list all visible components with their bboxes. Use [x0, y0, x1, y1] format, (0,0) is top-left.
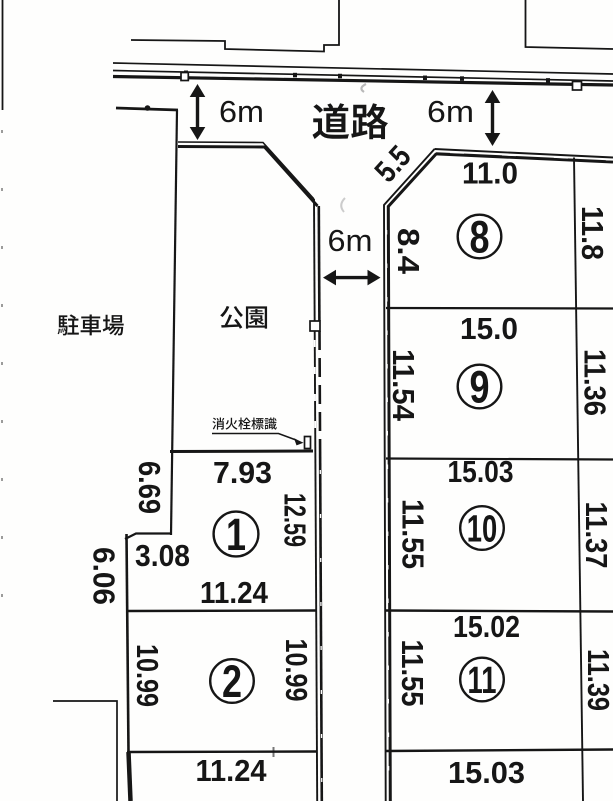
- svg-text:7.93: 7.93: [213, 455, 272, 490]
- svg-text:11.0: 11.0: [462, 156, 518, 191]
- svg-text:15.03: 15.03: [448, 454, 514, 489]
- svg-text:6m: 6m: [427, 95, 474, 129]
- svg-text:8.4: 8.4: [391, 228, 426, 275]
- svg-text:11.8: 11.8: [575, 206, 610, 260]
- svg-text:11.55: 11.55: [396, 499, 431, 569]
- svg-text:3.08: 3.08: [135, 538, 190, 573]
- svg-text:1: 1: [226, 509, 246, 560]
- svg-text:2: 2: [222, 656, 242, 707]
- svg-text:11.55: 11.55: [395, 640, 430, 707]
- svg-text:11.36: 11.36: [578, 349, 613, 416]
- svg-text:11.39: 11.39: [581, 649, 613, 711]
- svg-text:6.69: 6.69: [132, 461, 167, 514]
- svg-text:15.0: 15.0: [460, 311, 518, 346]
- svg-text:15.02: 15.02: [453, 609, 520, 644]
- svg-text:8: 8: [469, 212, 489, 263]
- svg-text:11.37: 11.37: [579, 502, 613, 569]
- svg-text:9: 9: [469, 362, 489, 413]
- svg-text:6.06: 6.06: [87, 547, 122, 605]
- svg-text:11.24: 11.24: [196, 753, 268, 788]
- svg-text:10: 10: [467, 508, 497, 550]
- svg-text:11.24: 11.24: [200, 575, 269, 610]
- svg-text:10.99: 10.99: [130, 644, 165, 707]
- svg-text:10.99: 10.99: [279, 639, 314, 702]
- svg-text:11.54: 11.54: [386, 349, 421, 422]
- svg-text:15.03: 15.03: [448, 755, 525, 790]
- svg-text:11: 11: [468, 660, 497, 702]
- svg-text:6m: 6m: [219, 95, 264, 129]
- svg-text:12.59: 12.59: [278, 493, 313, 547]
- svg-text:6m: 6m: [328, 224, 373, 258]
